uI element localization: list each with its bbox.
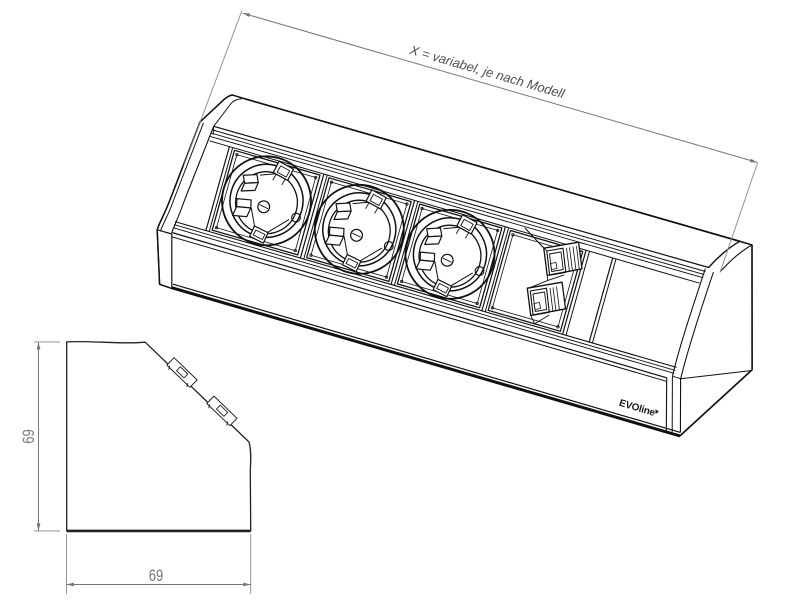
svg-text:69: 69 — [149, 566, 163, 585]
svg-text:69: 69 — [19, 429, 38, 443]
